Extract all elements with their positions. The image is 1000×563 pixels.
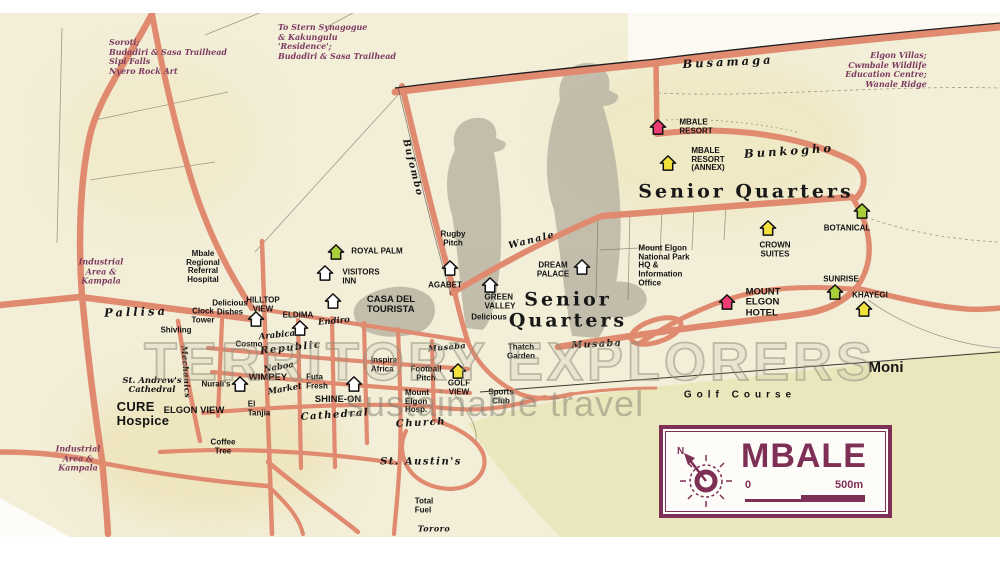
- hilltop-view-label: HILLTOP VIEW: [246, 296, 279, 313]
- scale-bar-thin: [745, 499, 805, 502]
- mbale-map: Soroti; Budadiri & Sasa Trailhead Sipi F…: [0, 0, 1000, 563]
- mbale-resort-label: MBALE RESORT: [679, 118, 712, 135]
- green-valley-house-icon: [481, 277, 499, 293]
- el-tanjia-label: El Tanjia: [248, 400, 271, 417]
- delicious-dishes-label: Delicious Dishes: [212, 299, 248, 316]
- scale-start-label: 0: [745, 479, 751, 491]
- mbale-resort-annex-label: MBALE RESORT (ANNEX): [691, 147, 724, 173]
- pallisa-road-label: Pallisa: [104, 305, 168, 320]
- royal-palm-house-icon: [327, 244, 345, 260]
- soroti-note: Soroti; Budadiri & Sasa Trailhead Sipi F…: [109, 38, 227, 76]
- agabet-label: AGABET: [428, 282, 462, 291]
- green-valley-label: GREEN VALLEY: [485, 293, 516, 310]
- botanical-house-icon: [853, 203, 871, 219]
- botanical-label: BOTANICAL: [824, 225, 871, 234]
- visitors-inn-house-icon: [316, 265, 334, 281]
- synagogue-note: To Stern Synagogue & Kakungulu 'Residenc…: [278, 23, 396, 61]
- svg-text:N: N: [677, 446, 684, 457]
- st-austins-label: St. Austin's: [380, 458, 462, 469]
- legend-title: MBALE: [741, 437, 867, 476]
- senior-quarters-label-1: Senior Quarters: [638, 182, 853, 203]
- dream-palace-label: DREAM PALACE: [537, 261, 569, 278]
- casa-del-tourista-label: CASA DEL TOURISTA: [367, 295, 415, 316]
- coffee-tree-label: Coffee Tree: [211, 438, 236, 455]
- clock-tower-label: Clock Tower: [192, 307, 215, 324]
- industrial-kampala-note-2: Industrial Area & Kampala: [56, 445, 101, 474]
- industrial-kampala-note-1: Industrial Area & Kampala: [79, 258, 124, 287]
- np-office-label: Mount Elgon National Park HQ & Informati…: [638, 244, 689, 287]
- khayegi-house-icon: [855, 301, 873, 317]
- crown-suites-house-icon: [759, 220, 777, 236]
- eldima-label: ELDIMA: [283, 312, 314, 321]
- rugby-pitch-label: Rugby Pitch: [441, 230, 466, 247]
- royal-palm-label: ROYAL PALM: [351, 248, 402, 257]
- casa-del-tourista-house-icon: [324, 293, 342, 309]
- khayegi-label: KHAYEGI: [852, 292, 888, 301]
- senior-quarters-label-2: Senior Quarters: [509, 289, 627, 330]
- scale-bar-thick: [801, 495, 865, 502]
- mount-elgon-hotel-label: MOUNT ELGON HOTEL: [746, 288, 781, 319]
- crown-suites-label: CROWN SUITES: [759, 241, 790, 258]
- delicious-label: Delicious: [471, 314, 507, 323]
- elgon-view-label: ELGON VIEW: [164, 406, 225, 416]
- tororo-road-label: Tororo: [418, 525, 450, 534]
- dream-palace-house-icon: [573, 259, 591, 275]
- sunrise-label: SUNRISE: [823, 276, 859, 285]
- watermark-tagline: sustainable travel: [346, 383, 644, 425]
- legend-box: N MBALE 0 500m: [659, 425, 892, 518]
- mount-elgon-hotel-house-icon: [718, 294, 736, 310]
- elgon-villas-note: Elgon Villas; Cwmbale Wildlife Education…: [845, 51, 926, 89]
- total-fuel-label: Total Fuel: [415, 497, 434, 514]
- scale-end-label: 500m: [835, 479, 863, 491]
- mbale-resort-house-icon: [649, 119, 667, 135]
- cure-hospice-label: CURE Hospice: [117, 400, 170, 428]
- visitors-inn-label: VISITORS INN: [342, 268, 379, 285]
- mbale-hospital-label: Mbale Regional Referral Hospital: [186, 250, 220, 285]
- agabet-house-icon: [441, 260, 459, 276]
- page-margin-top: [0, 0, 1000, 13]
- compass-icon: N: [673, 441, 735, 507]
- sunrise-house-icon: [826, 284, 844, 300]
- mbale-resort-annex-house-icon: [659, 155, 677, 171]
- page-margin-bottom: [0, 537, 1000, 563]
